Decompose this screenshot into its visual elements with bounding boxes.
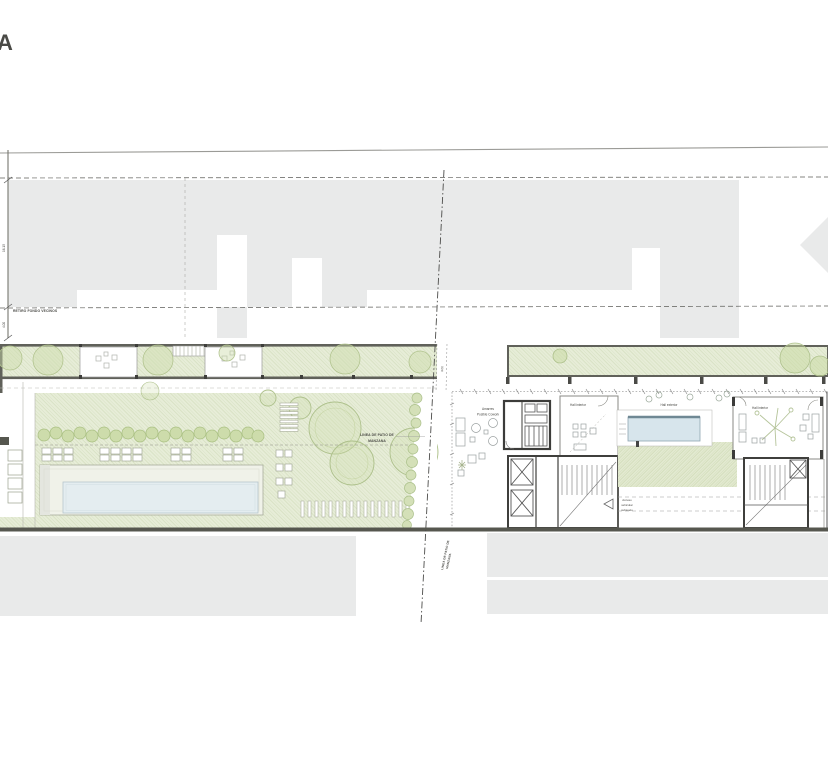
pool — [63, 482, 258, 513]
dimension-text: 16.15 — [2, 244, 6, 252]
retiro-fondo-label: RETIRO FONDO VECINOS — [13, 309, 58, 313]
svg-text:Acceso: Acceso — [622, 498, 632, 502]
neighbor-building-mass — [8, 180, 739, 338]
hall-interior-2: Hall interior — [732, 397, 823, 459]
setback-dashed-line-upper — [0, 177, 828, 178]
svg-text:Hall interior: Hall interior — [752, 406, 769, 410]
svg-text:Posible Cowork: Posible Cowork — [477, 413, 500, 417]
left-courtyard: LINEA DE PATIO DE MANZANA — [0, 382, 438, 530]
stair-core-b — [508, 456, 618, 528]
dimension-text: 3.00 — [440, 366, 444, 372]
site-plan-svg: A 16.15 4.00 RETIRO FONDO VE — [0, 0, 828, 774]
hall-exterior-courtyard: Hall exterior — [617, 391, 737, 528]
block-edge-line — [0, 147, 828, 153]
site-bottom-border — [0, 528, 828, 532]
dimension-text: 4.00 — [2, 322, 6, 328]
right-building: Amarres Posible Cowork — [450, 389, 828, 530]
svg-text:Hall interior: Hall interior — [570, 403, 587, 407]
plant-icon — [458, 460, 466, 470]
architectural-site-plan-page: { "title": { "fragment": "A" }, "labels"… — [0, 0, 828, 774]
water-feature — [617, 410, 712, 447]
top-green-band-right — [506, 343, 828, 384]
svg-text:Hall exterior: Hall exterior — [660, 403, 678, 407]
svg-text:subsuelo: subsuelo — [621, 508, 633, 512]
svg-text:Amarres: Amarres — [482, 407, 494, 411]
stair-core-c — [744, 458, 824, 528]
cowork-area: Amarres Posible Cowork — [456, 407, 499, 476]
hall-interior-1: Hall interior — [560, 396, 618, 460]
stair-core-a — [504, 401, 550, 449]
pergola — [173, 346, 207, 356]
sheet-title-fragment: A — [0, 30, 13, 55]
garden-steps — [280, 403, 298, 431]
patio-line-label-rotated: LINEA DE PATIO DE MANZANA — [440, 540, 455, 571]
svg-text:MANZANA: MANZANA — [368, 439, 386, 443]
neighbor-buildings-bottom — [0, 533, 828, 616]
canopy-posts — [506, 377, 826, 384]
roof-room-1 — [80, 347, 137, 377]
courtyard-circles — [646, 391, 730, 402]
svg-text:LINEA DE PATIO DE: LINEA DE PATIO DE — [360, 433, 394, 437]
diamond-building-shape — [800, 217, 828, 273]
context-buildings-top: 16.15 4.00 RETIRO FONDO VECINOS — [0, 147, 828, 341]
svg-text:vehicular: vehicular — [621, 503, 633, 507]
